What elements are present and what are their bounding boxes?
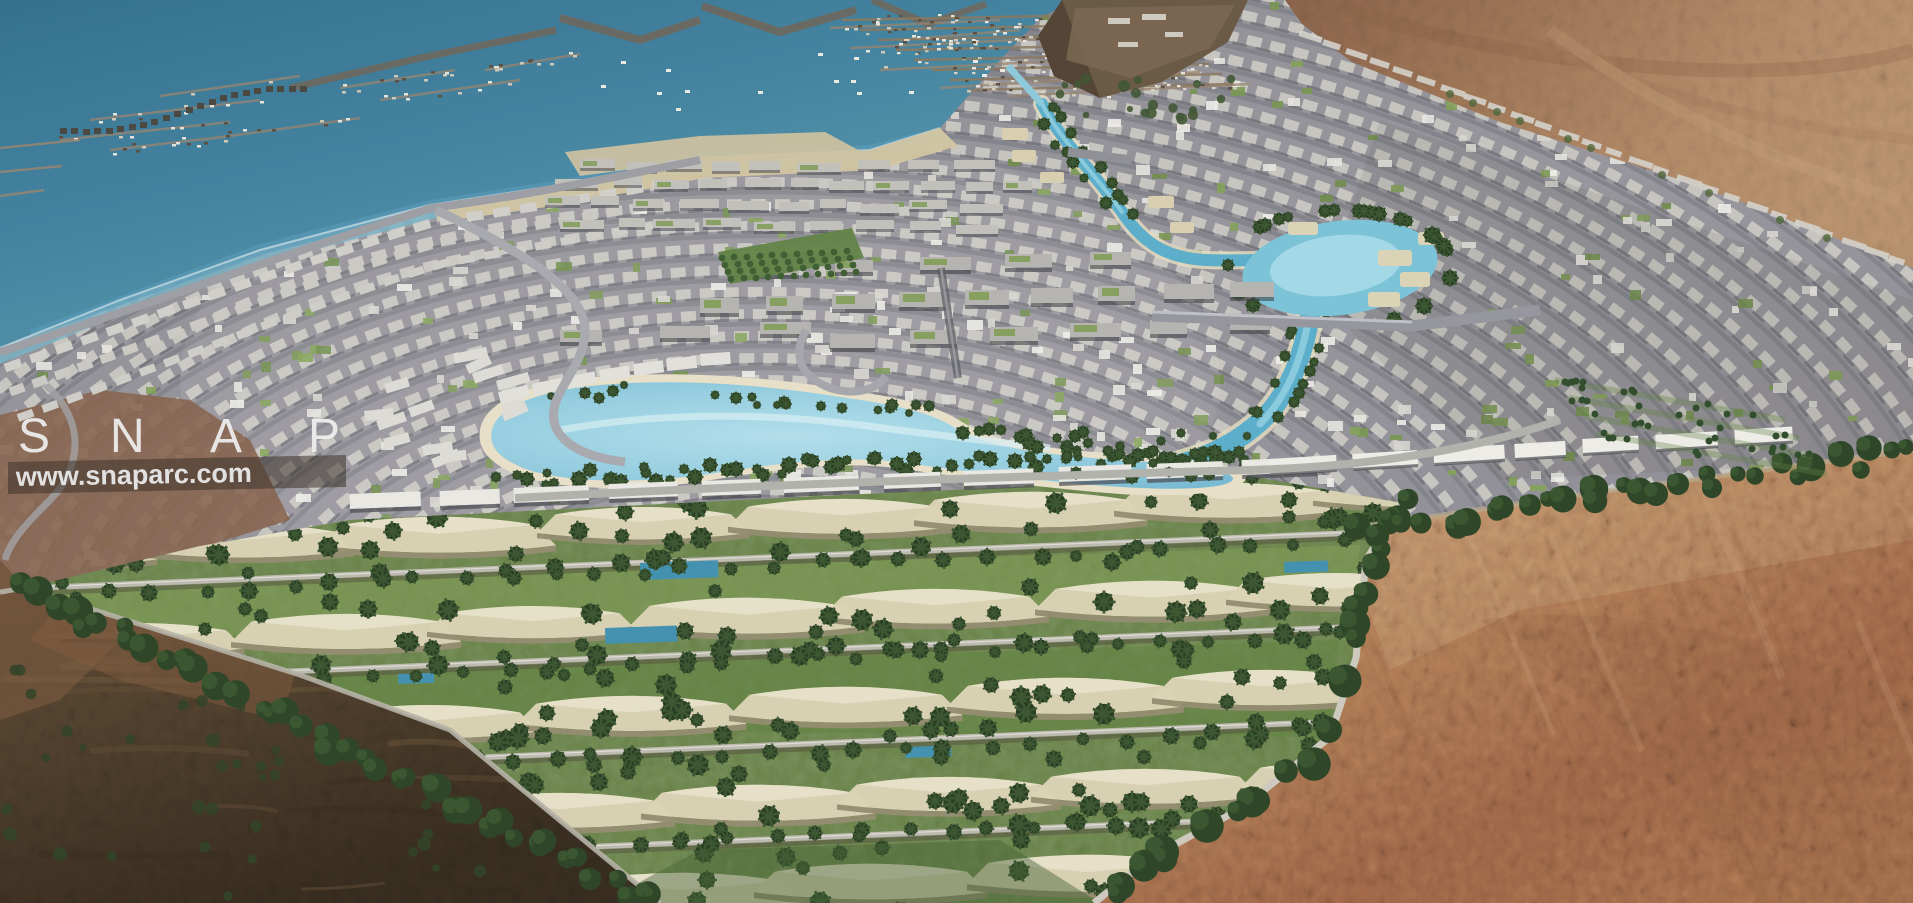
svg-text:S: S xyxy=(18,410,50,463)
svg-text:www.snaparc.com: www.snaparc.com xyxy=(15,458,253,492)
svg-text:A: A xyxy=(210,410,242,463)
svg-text:P: P xyxy=(308,410,340,463)
svg-text:N: N xyxy=(110,410,145,463)
